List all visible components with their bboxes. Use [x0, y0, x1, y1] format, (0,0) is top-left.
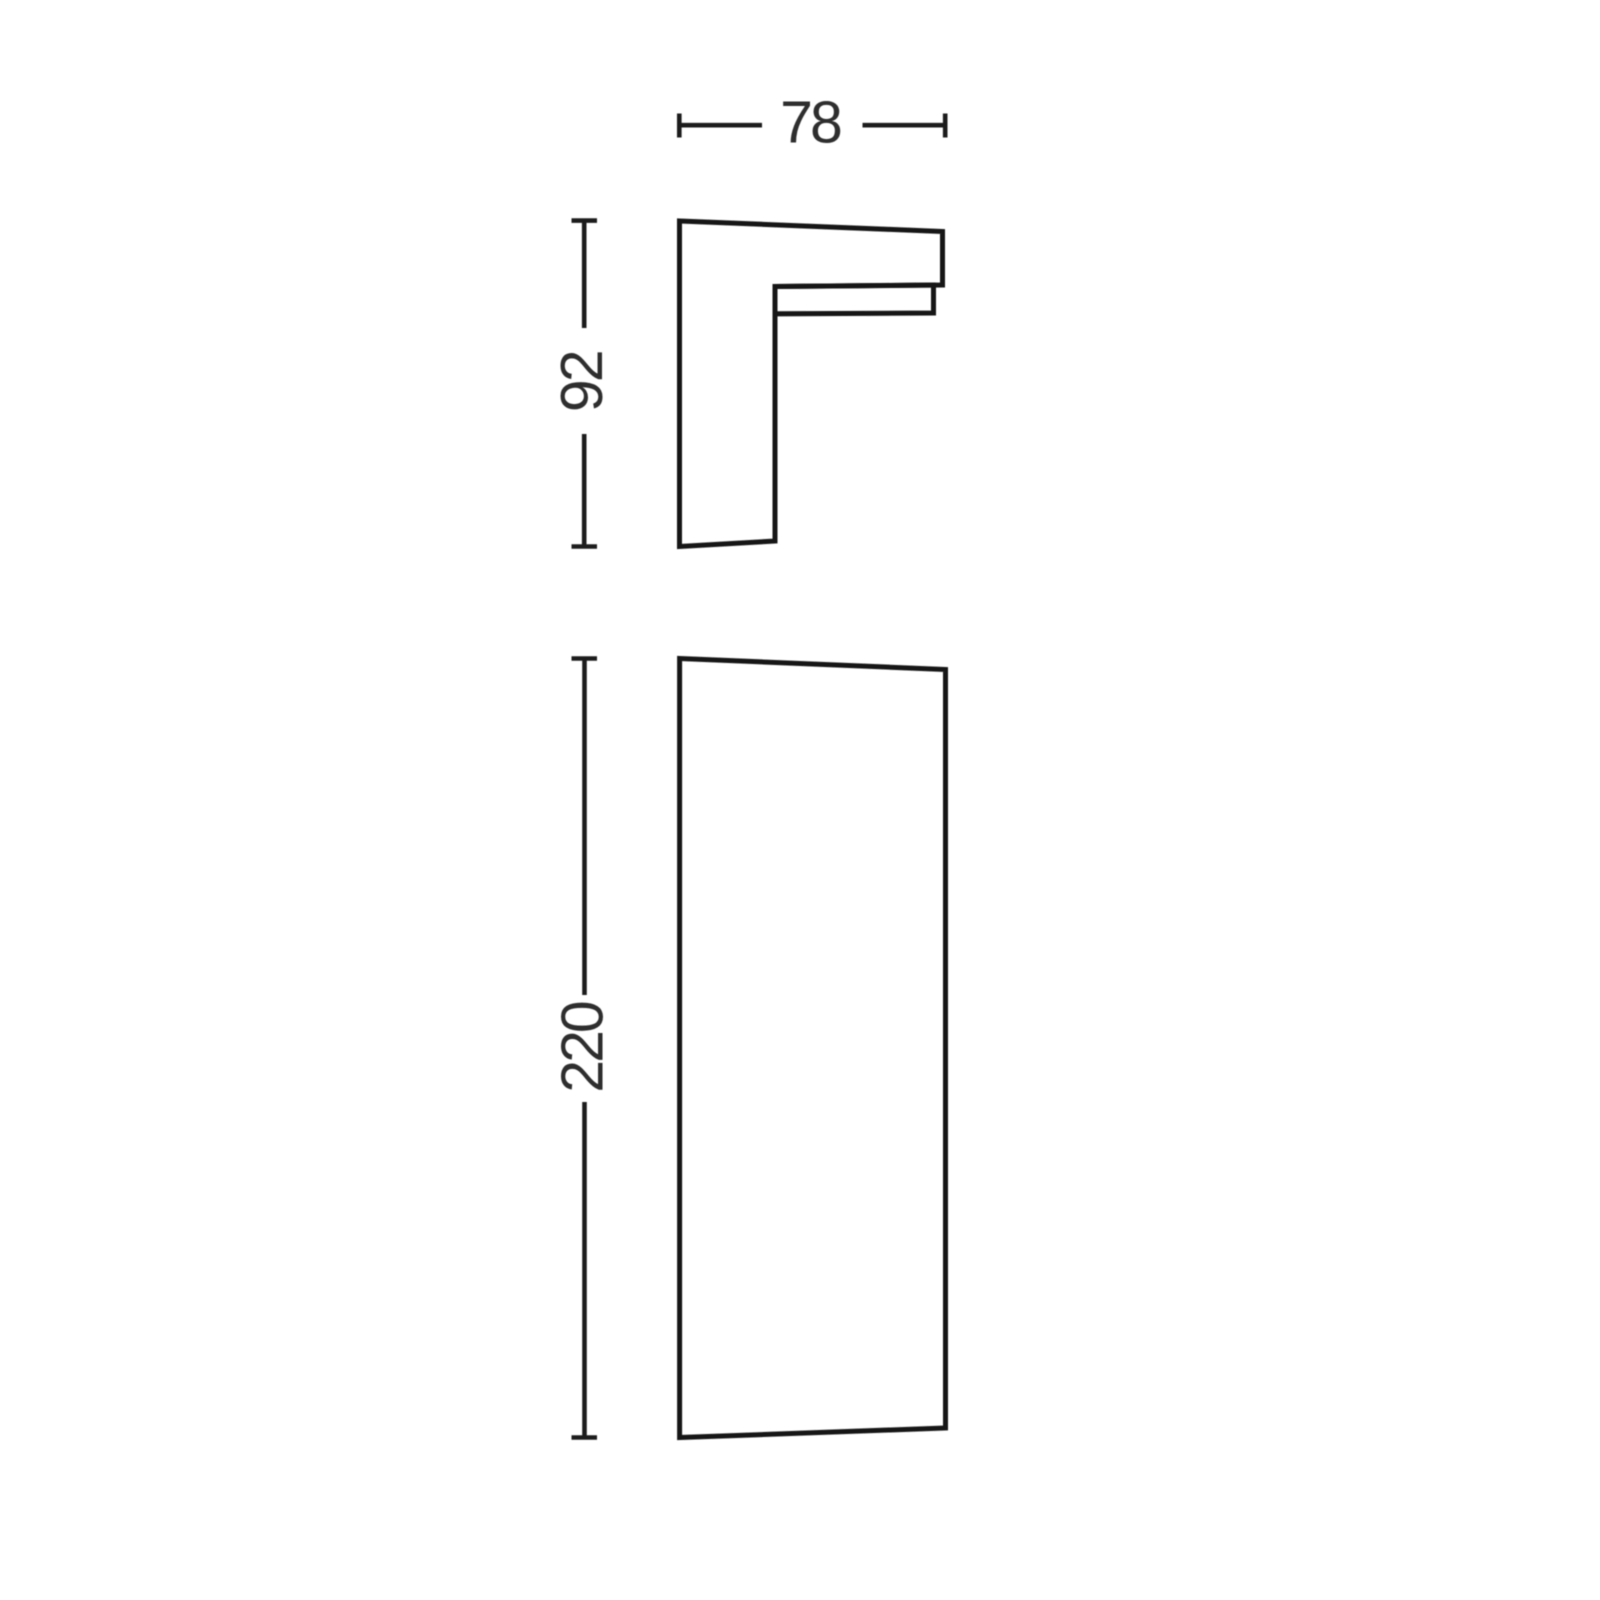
svg-text:220: 220	[550, 1002, 616, 1093]
svg-text:92: 92	[549, 352, 615, 412]
svg-text:78: 78	[780, 90, 841, 156]
